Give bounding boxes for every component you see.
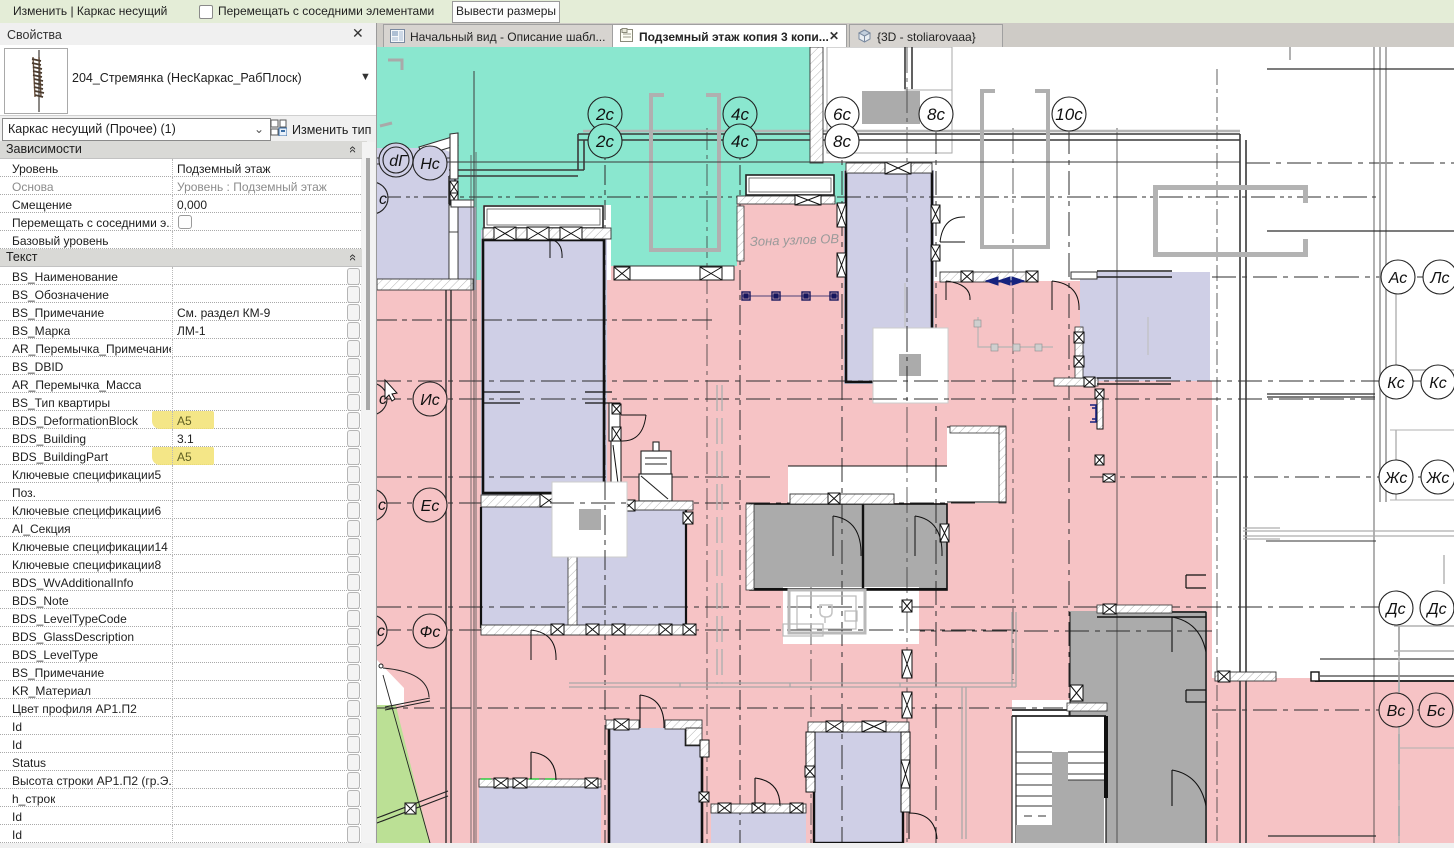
svg-text:6с: 6с (833, 105, 851, 124)
svg-text:2с: 2с (595, 132, 614, 151)
svg-text:Ис: Ис (420, 392, 439, 409)
svg-text:Бс: Бс (1427, 703, 1445, 720)
svg-text:Лс: Лс (1430, 270, 1450, 287)
svg-text:Кс: Кс (1429, 375, 1446, 392)
svg-text:Ес: Ес (421, 498, 440, 515)
svg-text:Ас: Ас (1388, 270, 1408, 287)
svg-text:Вс: Вс (1387, 703, 1406, 720)
svg-text:Жс: Жс (1384, 470, 1408, 487)
svg-text:10с: 10с (1055, 105, 1083, 124)
svg-text:8с: 8с (833, 132, 851, 151)
svg-text:Зона узлов ОВ: Зона узлов ОВ (750, 231, 840, 249)
svg-text:Дс: Дс (1384, 601, 1405, 618)
svg-text:Фс: Фс (420, 624, 441, 641)
svg-text:с: с (379, 191, 387, 208)
svg-text:Жс: Жс (1426, 470, 1450, 487)
svg-text:Кс: Кс (1387, 375, 1404, 392)
svg-text:4с: 4с (731, 105, 749, 124)
svg-text:Дс: Дс (1425, 601, 1446, 618)
svg-text:dГ: dГ (389, 153, 408, 170)
svg-text:4с: 4с (731, 132, 749, 151)
svg-text:Нс: Нс (420, 156, 440, 173)
svg-text:с: с (377, 623, 385, 640)
svg-text:с: с (378, 497, 386, 514)
svg-text:8с: 8с (927, 105, 945, 124)
svg-text:2с: 2с (595, 105, 614, 124)
